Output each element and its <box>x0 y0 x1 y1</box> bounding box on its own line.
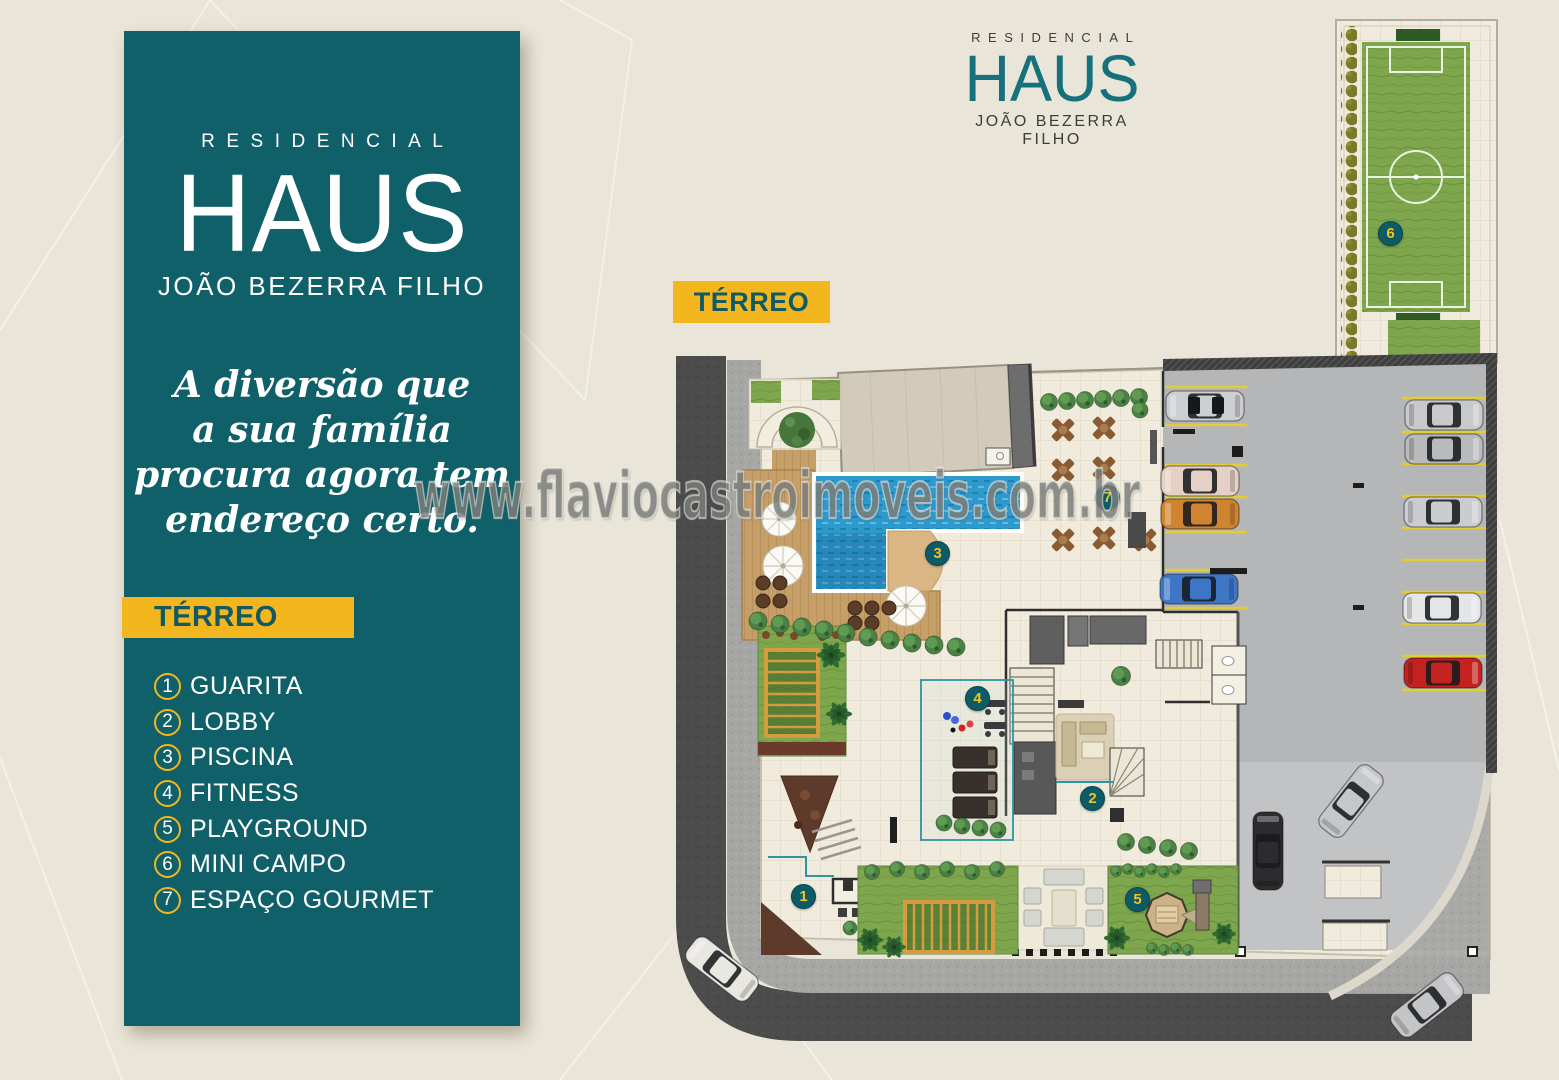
header-logo: RESIDENCIAL HAUS JOÃO BEZERRA FILHO <box>952 30 1152 149</box>
legend-label: FITNESS <box>190 779 299 808</box>
legend-label: ESPAÇO GOURMET <box>190 886 434 915</box>
watermark-text: www.flaviocastroimoveis.com.br <box>414 458 1140 535</box>
plan-marker-playground: 5 <box>1125 887 1150 912</box>
brand-subname: JOÃO BEZERRA FILHO <box>124 271 520 302</box>
hedge-row <box>1341 26 1357 356</box>
tagline-line: a sua família <box>124 408 520 453</box>
plan-marker-mini-campo: 6 <box>1378 221 1403 246</box>
bottom-garden <box>857 862 1018 960</box>
legend-number: 5 <box>154 816 181 843</box>
tagline-line: A diversão que <box>124 363 520 408</box>
plan-marker-guarita: 1 <box>791 884 816 909</box>
perimeter-wall-right <box>1486 353 1497 773</box>
plan-marker-lobby: 2 <box>1080 786 1105 811</box>
brand-logo: RESIDENCIAL HAUS JOÃO BEZERRA FILHO <box>124 131 520 302</box>
brochure-page: { "brand": { "kicker": "RESIDENCIAL", "n… <box>0 0 1559 1080</box>
playground <box>1104 864 1238 956</box>
mini-campo-block <box>1336 20 1497 362</box>
legend-label: GUARITA <box>190 672 303 701</box>
brand-kicker: RESIDENCIAL <box>124 131 532 153</box>
plan-marker-fitness: 4 <box>965 686 990 711</box>
legend-item: 4 FITNESS <box>154 776 508 812</box>
goal-top <box>1396 29 1440 41</box>
gate-lane <box>1323 923 1387 950</box>
legend-number: 1 <box>154 673 181 700</box>
legend-number: 4 <box>154 780 181 807</box>
legend-item: 7 ESPAÇO GOURMET <box>154 883 508 919</box>
stairs <box>1010 668 1054 744</box>
brand-name: HAUS <box>124 158 520 270</box>
floor-badge-plan: TÉRREO <box>673 281 830 323</box>
floor-badge-sidebar: TÉRREO <box>122 597 354 638</box>
legend-number: 6 <box>154 851 181 878</box>
legend-label: MINI CAMPO <box>190 850 346 879</box>
brand-subname: JOÃO BEZERRA FILHO <box>952 113 1152 149</box>
plan-marker-piscina: 3 <box>925 541 950 566</box>
legend-label: PLAYGROUND <box>190 815 368 844</box>
legend-label: LOBBY <box>190 708 276 737</box>
legend-number: 7 <box>154 887 181 914</box>
legend-item: 5 PLAYGROUND <box>154 811 508 847</box>
amenities-legend: 1 GUARITA 2 LOBBY 3 PISCINA 4 FITNESS 5 … <box>154 669 508 918</box>
legend-number: 3 <box>154 744 181 771</box>
outdoor-lounge <box>1012 866 1117 956</box>
legend-item: 1 GUARITA <box>154 669 508 705</box>
legend-item: 2 LOBBY <box>154 705 508 741</box>
legend-item: 3 PISCINA <box>154 740 508 776</box>
brand-name: HAUS <box>952 46 1152 112</box>
legend-item: 6 MINI CAMPO <box>154 847 508 883</box>
legend-number: 2 <box>154 709 181 736</box>
legend-label: PISCINA <box>190 743 294 772</box>
gate-lane <box>1325 866 1381 898</box>
